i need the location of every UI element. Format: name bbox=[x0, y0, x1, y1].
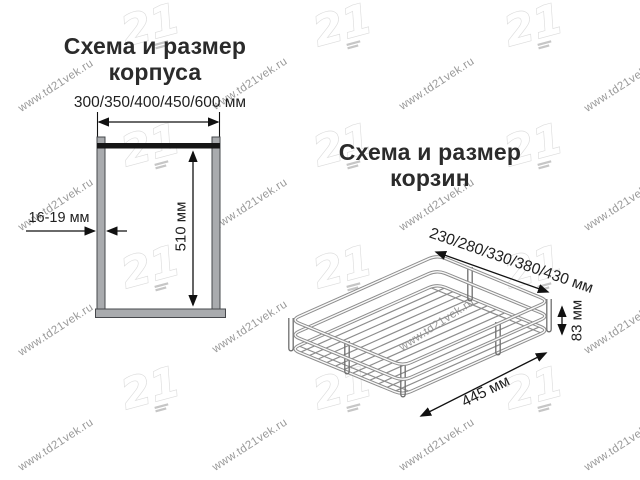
cabinet-right-panel bbox=[212, 137, 220, 309]
product-spec-diagram: 21 21 21 21 bbox=[0, 0, 640, 480]
korzina-title: Схема и размер корзин bbox=[330, 140, 530, 192]
cabinet-bottom-panel bbox=[96, 309, 226, 318]
korpus-width-label: 300/350/400/450/600 мм bbox=[35, 94, 285, 112]
korpus-height-label: 510 мм bbox=[173, 197, 190, 257]
korpus-title: Схема и размер корпуса bbox=[30, 34, 280, 86]
basket-diagram bbox=[289, 252, 562, 416]
korzina-height-label: 83 мм bbox=[569, 296, 586, 346]
korzina-title-line1: Схема и размер bbox=[330, 140, 530, 166]
basket-middle-rail bbox=[295, 272, 545, 379]
korpus-title-line1: Схема и размер bbox=[30, 34, 280, 60]
cabinet-top-rail bbox=[97, 143, 220, 149]
cabinet-left-panel bbox=[97, 137, 105, 309]
korzina-title-line2: корзин bbox=[330, 166, 530, 192]
korpus-thickness-label: 16-19 мм bbox=[21, 210, 97, 226]
korpus-title-line2: корпуса bbox=[30, 60, 280, 86]
